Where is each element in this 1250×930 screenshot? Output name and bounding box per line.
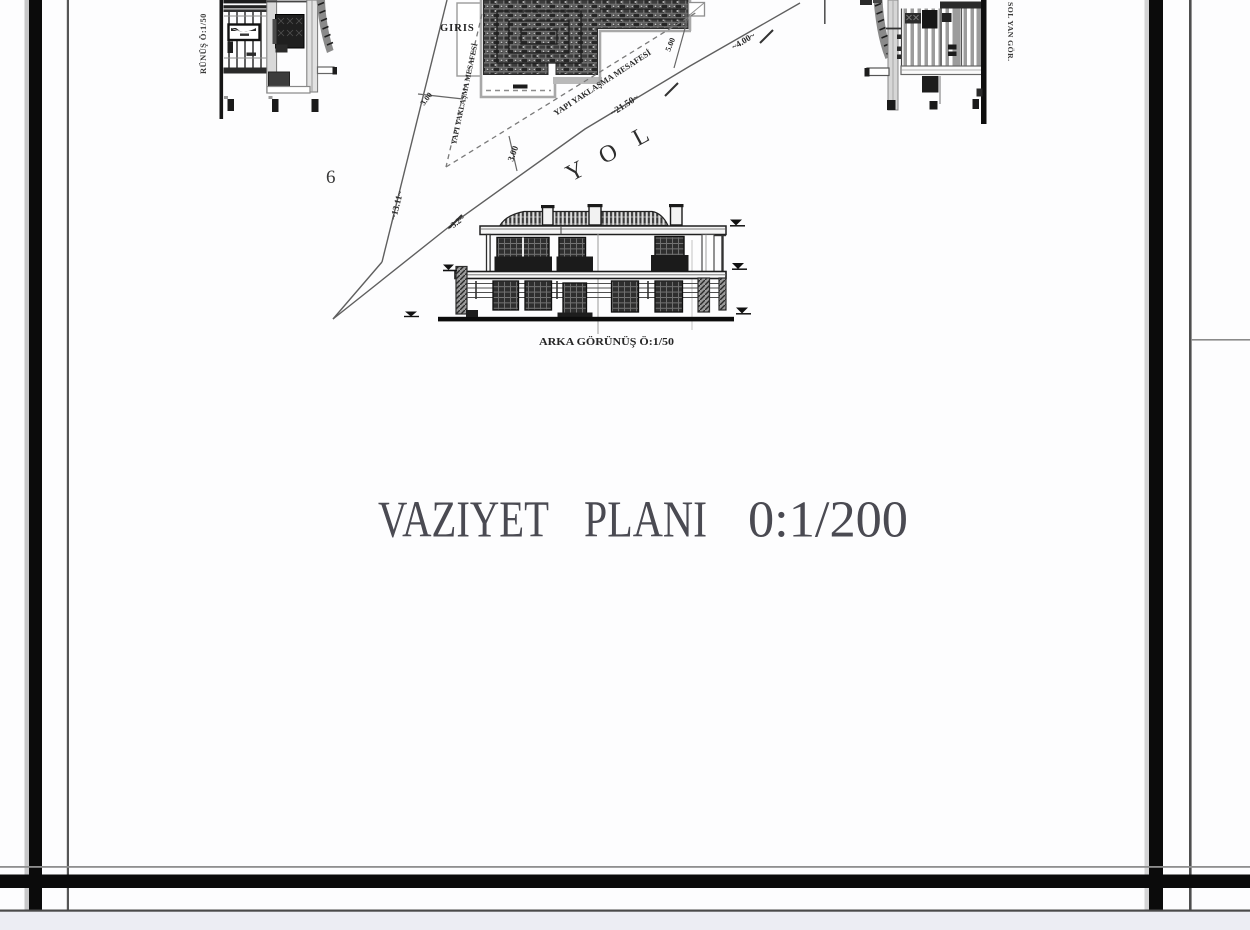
svg-text:RÜNÜŞ Ö:1/50: RÜNÜŞ Ö:1/50 xyxy=(198,13,208,74)
svg-text:ARKA GÖRÜNÜŞ Ö:1/50: ARKA GÖRÜNÜŞ Ö:1/50 xyxy=(539,335,675,348)
svg-text:GIRIS: GIRIS xyxy=(440,23,475,34)
svg-text:PLANI: PLANI xyxy=(584,492,707,549)
svg-text:6: 6 xyxy=(326,167,336,188)
svg-text:SOL YAN GÖR.: SOL YAN GÖR. xyxy=(1006,2,1015,61)
svg-text:0:1/200: 0:1/200 xyxy=(748,492,908,549)
svg-text:VAZIYET: VAZIYET xyxy=(378,492,549,549)
